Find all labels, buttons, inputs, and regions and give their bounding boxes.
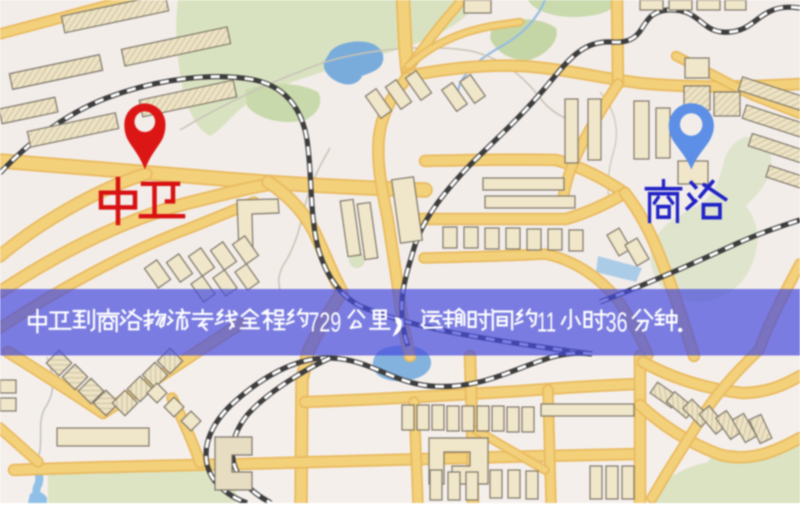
svg-text:11: 11	[537, 307, 556, 338]
svg-text:36: 36	[606, 307, 628, 338]
svg-text:729: 729	[308, 307, 341, 338]
